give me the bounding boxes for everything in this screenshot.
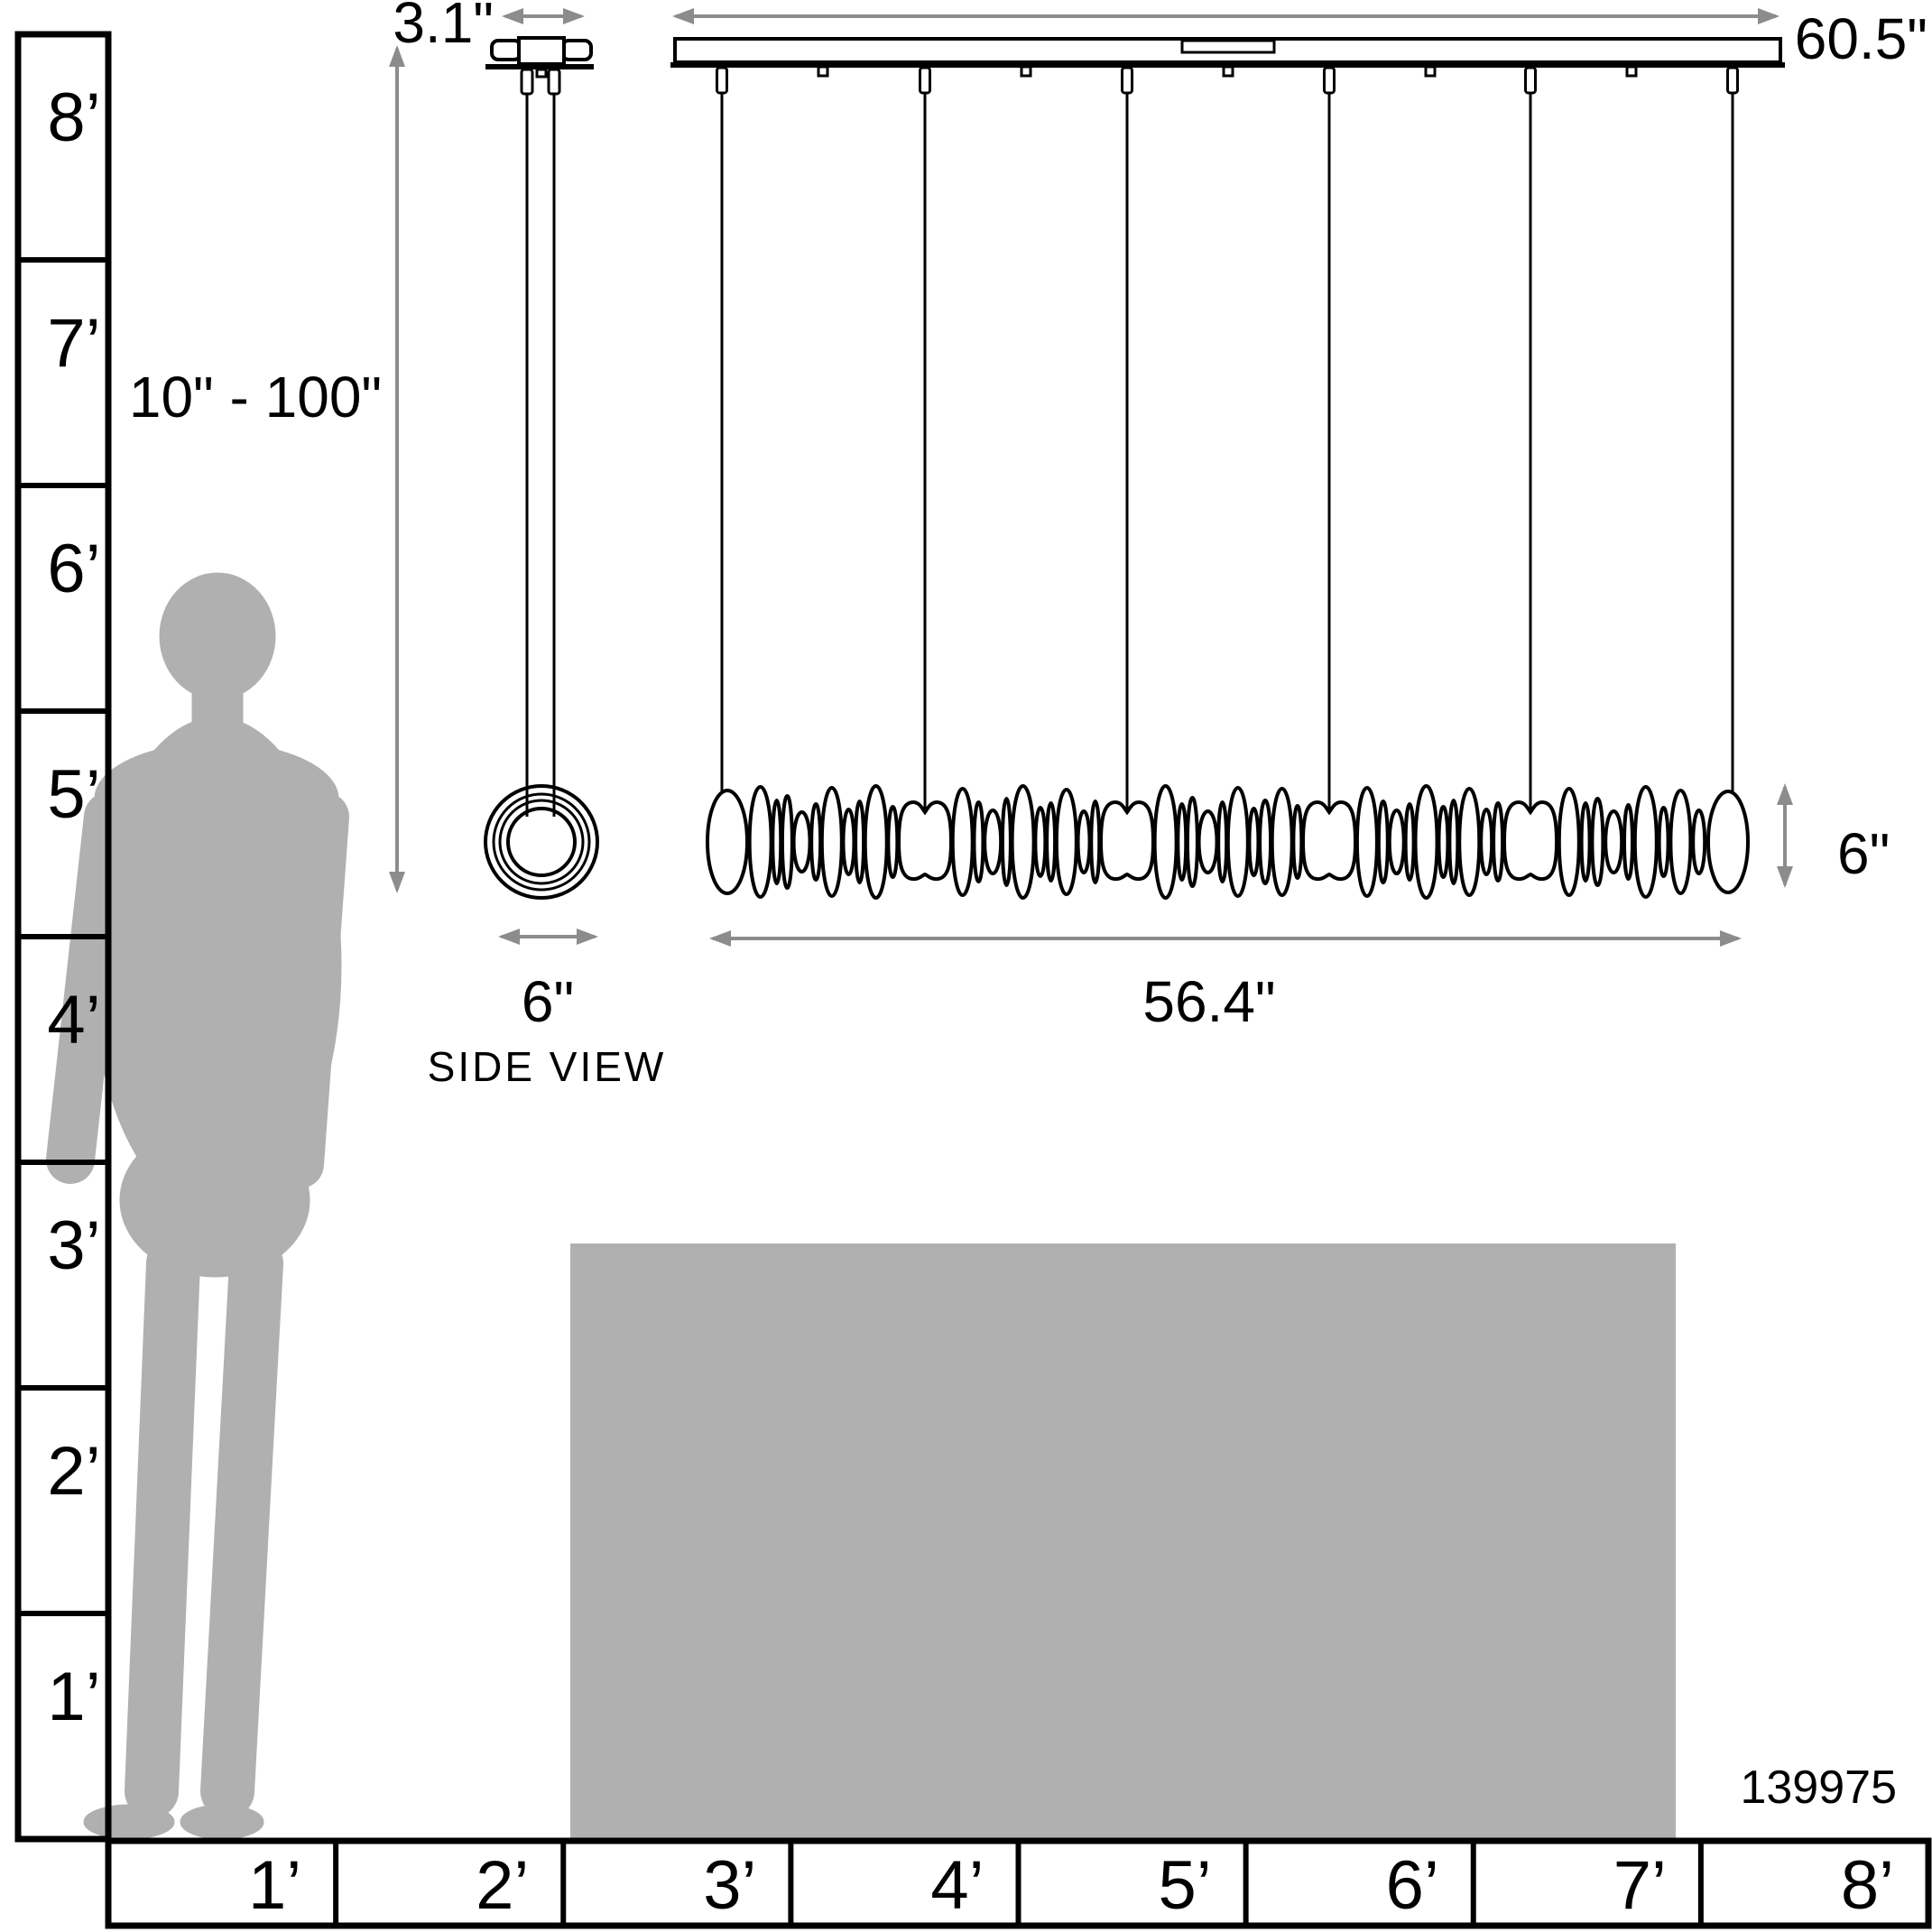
bottom-ruler-label: 8’: [1841, 1847, 1894, 1924]
pebble: [1091, 801, 1099, 883]
anchor-pebble: [1303, 802, 1355, 879]
arrowhead: [498, 929, 520, 945]
cable-stem: [1123, 68, 1132, 93]
dim-label-fixture-width: 56.4": [1142, 969, 1275, 1034]
dim-arrow-overall-width: [672, 8, 1779, 24]
side-view-caption: SIDE VIEW: [428, 1043, 667, 1090]
side-cable-stem: [549, 69, 559, 94]
bottom-ruler-label: 7’: [1613, 1847, 1667, 1924]
pebble: [1390, 810, 1404, 874]
pebble: [1357, 788, 1377, 896]
canopy-nub: [1224, 67, 1233, 76]
pebble: [750, 787, 772, 897]
figure-head: [160, 573, 275, 699]
pebble: [1449, 800, 1457, 883]
pebble: [811, 804, 820, 880]
canopy-nub: [818, 67, 827, 76]
figure-foot-left: [84, 1805, 174, 1839]
cable-stem: [717, 68, 727, 93]
side-fixture-ring: [485, 786, 597, 898]
arrowhead: [1758, 8, 1779, 24]
bottom-ruler-label: 3’: [703, 1847, 756, 1924]
pebble: [1155, 786, 1177, 898]
pebble: [1559, 789, 1579, 895]
pebble: [953, 789, 973, 895]
arrowhead: [563, 8, 585, 24]
pebble: [1057, 790, 1077, 894]
figure-arm-right: [300, 817, 325, 1164]
front-view: [670, 39, 1785, 898]
pebble: [1293, 806, 1301, 878]
bottom-ruler: 1’2’3’4’5’6’7’8’: [108, 1841, 1928, 1926]
left-ruler-label: 1’: [47, 1659, 100, 1735]
pebble: [1035, 808, 1045, 876]
left-ruler-label: 7’: [47, 305, 100, 382]
pebble: [1416, 786, 1437, 898]
pebble: [1218, 802, 1226, 882]
cable-stem: [920, 68, 930, 93]
dim-label-side-diameter: 6": [522, 969, 574, 1034]
figure-leg-left: [152, 1263, 173, 1791]
figure-leg-right: [227, 1263, 256, 1791]
pebble: [1078, 811, 1090, 873]
pebble: [1199, 811, 1217, 873]
pebble: [1379, 801, 1388, 883]
pebble: [1012, 786, 1034, 898]
arrowhead: [1777, 866, 1793, 888]
pebble: [1406, 804, 1414, 880]
pebble: [1670, 790, 1690, 893]
dim-label-overall-width: 60.5": [1795, 6, 1927, 71]
side-cable-stem: [522, 69, 532, 94]
bottom-ruler-label: 1’: [248, 1847, 301, 1924]
anchor-pebble: [899, 802, 951, 879]
canopy-nub: [1021, 67, 1031, 76]
main-canopy-driver-box: [1182, 41, 1274, 52]
left-ruler-label: 3’: [47, 1207, 100, 1284]
arrowhead: [672, 8, 694, 24]
pebble: [888, 807, 897, 877]
dim-label-canopy-width: 3.1": [393, 0, 494, 55]
pebble: [1582, 803, 1590, 881]
pebble: [865, 786, 887, 898]
dim-arrow-side-diameter: [498, 929, 598, 945]
pebble: [794, 812, 810, 872]
pebble-glass-bar: [707, 786, 1748, 898]
pebble: [1228, 788, 1248, 896]
product-code: 139975: [1740, 1761, 1897, 1814]
cable-stem: [1728, 68, 1738, 93]
pebble: [1693, 810, 1705, 874]
pebble: [1249, 809, 1258, 875]
pebble: [1003, 799, 1011, 885]
pebble: [1481, 809, 1492, 874]
pebble: [1459, 789, 1479, 895]
left-ruler: 8’7’6’5’4’3’2’1’: [18, 34, 108, 1839]
pebble: [1047, 803, 1055, 881]
dim-arrow-fixture-height: [1777, 783, 1793, 888]
arrowhead: [709, 930, 731, 947]
arrowhead: [502, 8, 523, 24]
side-fixture-ring: [500, 800, 583, 883]
pebble: [822, 788, 842, 896]
pebble: [1272, 789, 1292, 895]
left-ruler-label: 4’: [47, 982, 100, 1058]
pebble: [843, 809, 854, 874]
pebble: [1624, 805, 1632, 879]
dim-label-fixture-height: 6": [1837, 821, 1890, 886]
side-view: [485, 38, 597, 898]
cable-stem: [1325, 68, 1335, 93]
side-canopy-wing-left: [492, 41, 521, 60]
side-canopy-box: [519, 38, 564, 64]
bottom-ruler-label: 2’: [476, 1847, 529, 1924]
pebble: [1178, 804, 1186, 880]
pebble: [1659, 808, 1669, 876]
diagram-canvas: 8’7’6’5’4’3’2’1’ 1’2’3’4’5’6’7’8’ 3.1" 6…: [0, 0, 1932, 1932]
pebble: [1493, 803, 1502, 881]
reference-table: [570, 1243, 1676, 1841]
bottom-ruler-label: 4’: [930, 1847, 984, 1924]
end-pebble: [1708, 791, 1748, 892]
dim-label-suspension-range: 10" - 100": [129, 365, 382, 430]
side-fixture-circle: [485, 786, 597, 898]
side-canopy-wing-right: [562, 41, 591, 60]
arrowhead: [389, 872, 405, 893]
dim-arrow-canopy-width: [502, 8, 585, 24]
pebble: [1635, 787, 1657, 897]
dimension-diagram: 8’7’6’5’4’3’2’1’ 1’2’3’4’5’6’7’8’ 3.1" 6…: [0, 0, 1932, 1932]
pebble: [984, 810, 1001, 874]
anchor-pebble: [1504, 802, 1557, 879]
pebble: [1260, 800, 1271, 883]
canopy-nub: [1627, 67, 1636, 76]
pebble: [1605, 811, 1622, 873]
left-ruler-label: 8’: [47, 79, 100, 156]
pebble: [1592, 799, 1603, 885]
pebble: [772, 800, 781, 883]
canopy-nub: [1426, 67, 1435, 76]
pebble: [1438, 807, 1447, 877]
dim-arrow-suspension-range: [389, 45, 405, 893]
pebble: [974, 802, 983, 882]
cable-stem: [1526, 68, 1536, 93]
left-ruler-label: 5’: [47, 756, 100, 833]
bottom-ruler-label: 5’: [1158, 1847, 1211, 1924]
figure-foot-right: [180, 1805, 263, 1839]
suspension-cables: [717, 67, 1738, 814]
end-pebble: [707, 790, 747, 893]
side-canopy-nub: [537, 69, 546, 77]
side-hangers: [522, 69, 559, 817]
bottom-ruler-label: 6’: [1386, 1847, 1439, 1924]
anchor-pebble: [1101, 802, 1153, 879]
left-ruler-label: 6’: [47, 531, 100, 607]
arrowhead: [577, 929, 598, 945]
pebble: [1188, 798, 1197, 886]
dim-arrow-fixture-width: [709, 930, 1742, 947]
pebble: [782, 796, 792, 888]
arrowhead: [1777, 783, 1793, 805]
side-fixture-ring: [508, 809, 575, 875]
pebble: [855, 801, 864, 883]
arrowhead: [1720, 930, 1742, 947]
left-ruler-label: 2’: [47, 1433, 100, 1510]
